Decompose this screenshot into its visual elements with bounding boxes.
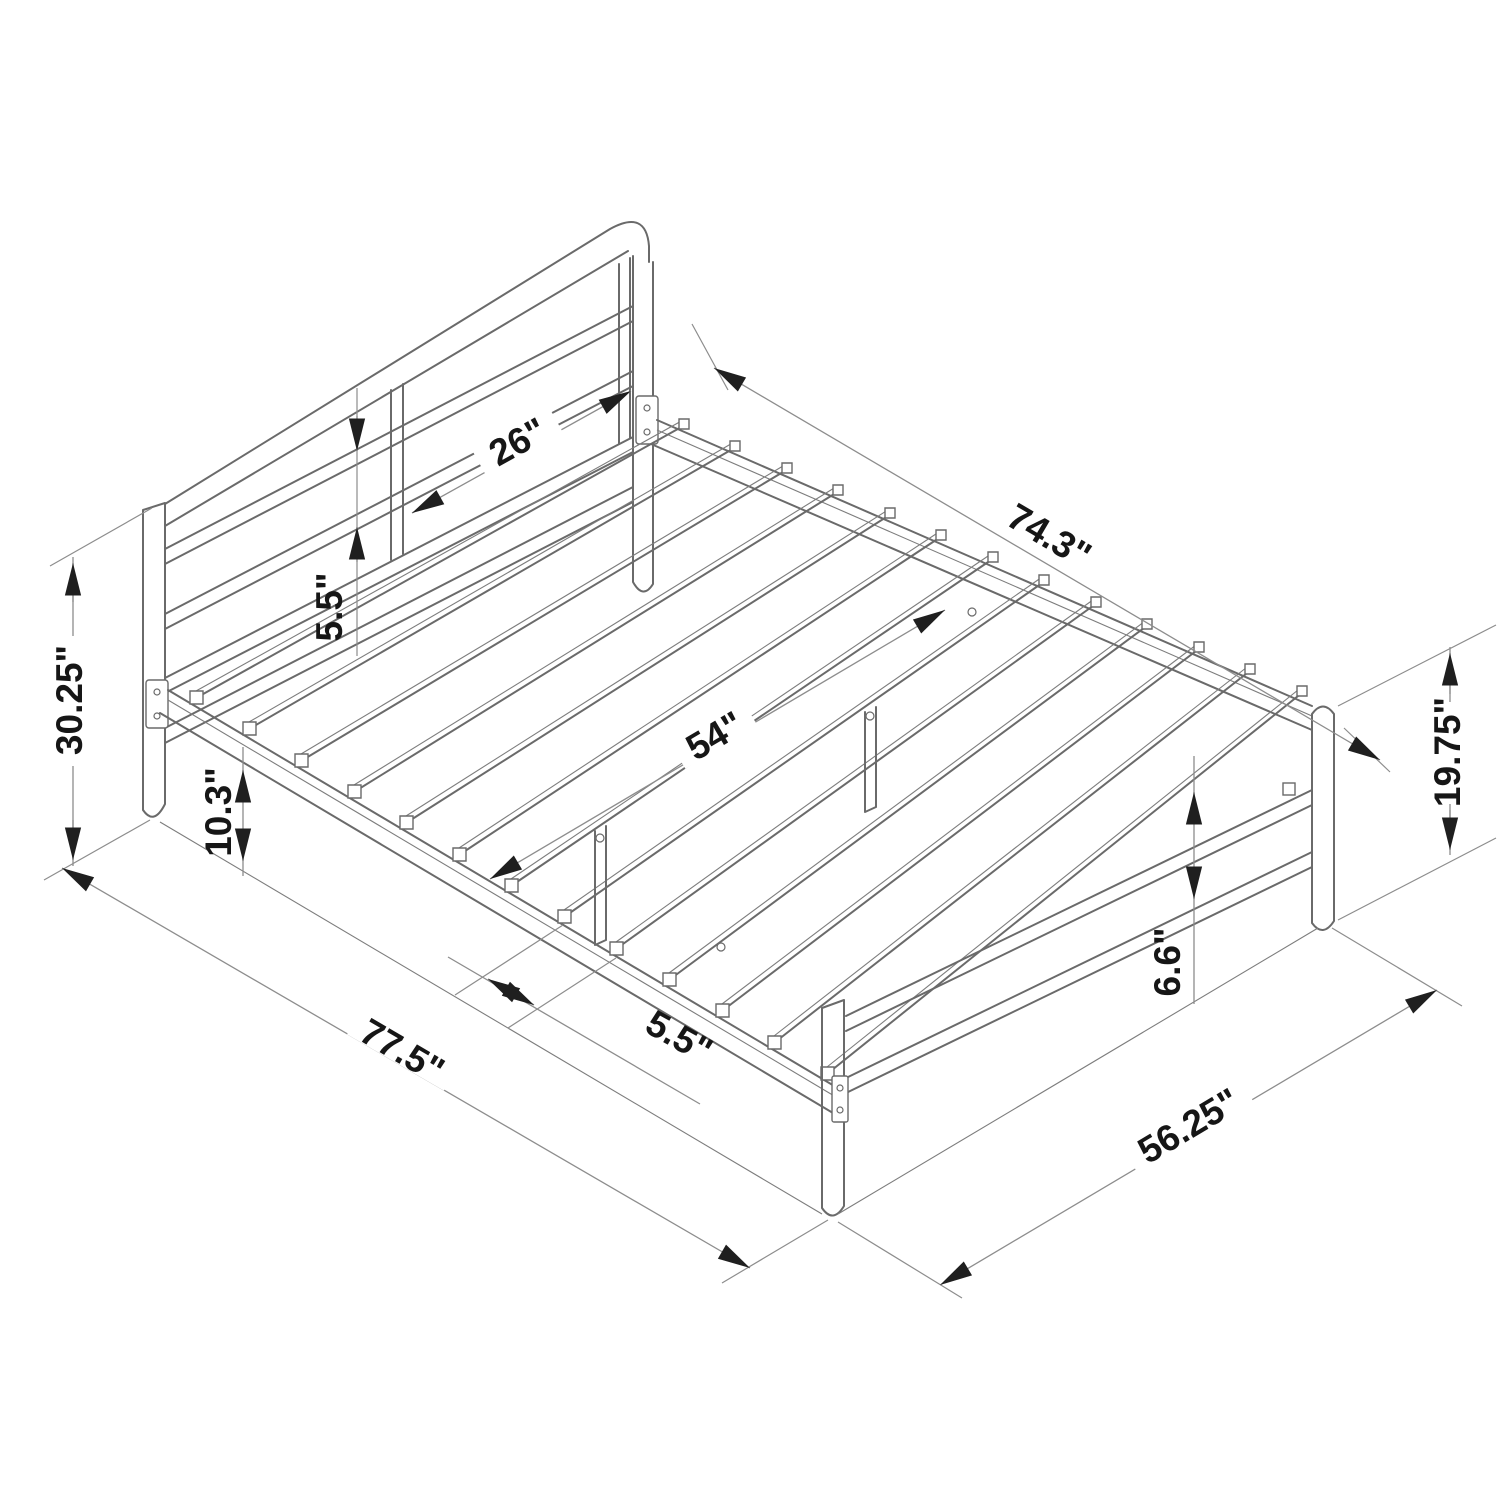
- bracket-hole: [644, 405, 650, 411]
- dim-headboard-height: 30.25": [49, 557, 90, 866]
- bracket-hole: [644, 429, 650, 435]
- dim-label-19-75: 19.75": [1427, 697, 1468, 807]
- dim-label-77-5: 77.5": [353, 1011, 451, 1091]
- dim-overall-width: 56.25": [940, 990, 1437, 1285]
- headboard: [143, 222, 658, 817]
- bracket-hole: [154, 689, 160, 695]
- dim-foot-post-height: 19.75": [1427, 647, 1468, 855]
- bed-frame-dimension-diagram: 26" 74.3" 5.5" 30.25": [0, 0, 1500, 1500]
- slat-top-edges: [196, 419, 1303, 1067]
- headboard-rail-4: [165, 437, 633, 693]
- dim-side-rail-clearance: 10.3": [198, 747, 243, 876]
- left-rail-bracket: [146, 680, 168, 728]
- foot-rail-lower: [846, 852, 1312, 1093]
- dim-foot-rail-height: 6.6": [1147, 756, 1194, 1004]
- dim-label-6-6: 6.6": [1147, 928, 1188, 997]
- headboard-rail-5: [165, 487, 633, 743]
- headboard-spindle-left: [391, 384, 403, 560]
- dim-label-5-5-spacing: 5.5": [639, 1002, 719, 1072]
- bracket-hole: [837, 1107, 843, 1113]
- headboard-left-post: [143, 503, 165, 817]
- right-rail-bracket: [636, 396, 658, 444]
- far-side-rail-ledge: [657, 430, 1312, 716]
- headboard-rail-3: [165, 371, 633, 629]
- slat-near-caps: [190, 691, 834, 1080]
- foot-rail-cap: [1283, 783, 1295, 795]
- dim-headboard-rail-gap: 5.5": [309, 388, 357, 656]
- foot-rail-bracket: [832, 1076, 848, 1122]
- dim-label-5-5-headboard: 5.5": [309, 573, 350, 642]
- headboard-spindle-right: [619, 258, 630, 444]
- footboard: [822, 707, 1334, 1216]
- slat-far-caps: [679, 419, 1307, 696]
- dim-label-10-3: 10.3": [198, 767, 239, 857]
- dim-label-56-25: 56.25": [1131, 1080, 1247, 1171]
- center-support-leg-1: [595, 826, 606, 945]
- rail-hole: [968, 608, 976, 616]
- near-side-rail: [160, 690, 841, 1113]
- foot-rail-upper: [846, 790, 1312, 1031]
- far-foot-post: [1312, 707, 1334, 931]
- dim-label-74-3: 74.3": [1000, 495, 1098, 576]
- slat-lines: [196, 425, 1303, 1074]
- leg-hole: [596, 834, 604, 842]
- side-rails: [160, 420, 1312, 1113]
- bracket-hole: [837, 1085, 843, 1091]
- bracket-hole: [154, 713, 160, 719]
- headboard-rail-2: [165, 306, 633, 564]
- diagram-canvas: 26" 74.3" 5.5" 30.25": [0, 0, 1500, 1500]
- far-side-rail: [651, 420, 1312, 730]
- leg-hole: [866, 712, 874, 720]
- dim-label-30-25: 30.25": [49, 645, 90, 755]
